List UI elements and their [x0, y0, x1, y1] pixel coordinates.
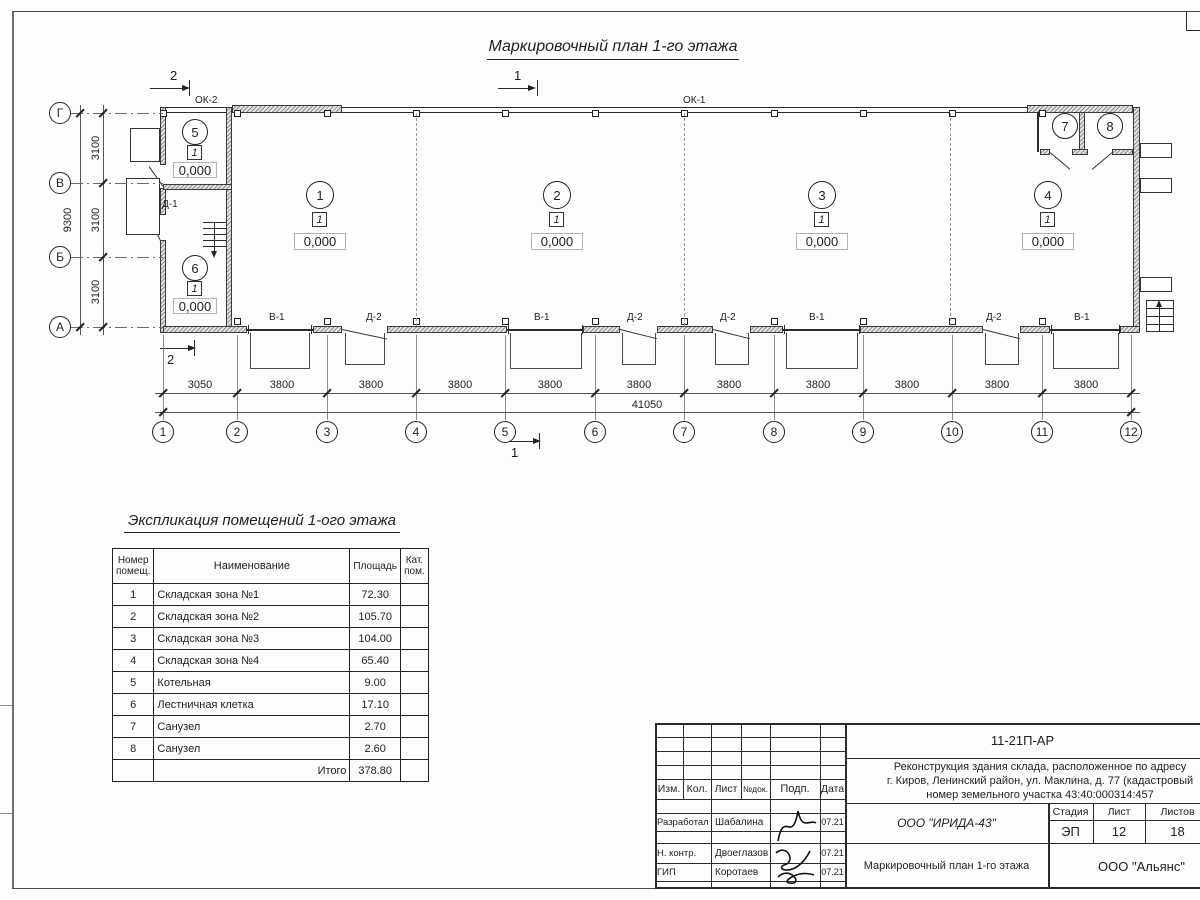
section-label: 1	[514, 68, 521, 83]
opening-label: В-1	[269, 312, 285, 323]
column-marker	[592, 110, 599, 117]
axis-bubble: В	[49, 172, 71, 194]
dimension-total: 9300	[62, 208, 74, 232]
wall-left-3	[160, 240, 166, 333]
room-number-bubble: 5	[182, 119, 208, 145]
grid-bubble: 1	[152, 421, 174, 443]
schedule-header: Номер помещ.	[113, 549, 154, 584]
gate-opening-line	[507, 329, 583, 331]
room-type-marker: 1	[1040, 212, 1055, 227]
sheet-value: 12	[1093, 820, 1145, 843]
elevation-label: 0,000	[531, 233, 583, 250]
room-number-bubble: 3	[808, 181, 836, 209]
window-mark-ok2: ОК-2	[195, 95, 218, 106]
gate-jamb	[859, 325, 860, 334]
section-arrow-line	[150, 88, 182, 89]
ramp	[715, 333, 749, 365]
dimension-value: 3800	[359, 379, 383, 391]
dimension-value: 3800	[985, 379, 1009, 391]
dimension-value: 3800	[895, 379, 919, 391]
window-band-ok2	[163, 107, 232, 113]
gate-jamb	[1051, 325, 1052, 334]
table-row: 5 Котельная 9.00	[113, 672, 429, 694]
room-type-marker: 1	[187, 145, 202, 160]
room-number-bubble: 1	[306, 181, 334, 209]
wall-block-right	[226, 107, 232, 333]
column-marker	[1039, 110, 1046, 117]
frame-left-mark-2	[0, 813, 12, 814]
stair-tread	[1146, 316, 1174, 317]
extension-line	[595, 335, 596, 420]
ramp	[985, 333, 1019, 365]
gate-jamb	[582, 325, 583, 334]
table-row: 4 Складская зона №4 65.40	[113, 650, 429, 672]
wall-bottom-4	[583, 326, 620, 333]
section-arrow-line	[498, 88, 530, 89]
frame-corner-box	[1186, 11, 1187, 30]
schedule-header: Наименование	[154, 549, 350, 584]
room-number-bubble: 4	[1034, 181, 1062, 209]
stair-tread	[1146, 324, 1174, 325]
ramp	[510, 333, 582, 369]
contractor-org: ООО "Альянс"	[1048, 843, 1200, 889]
column-marker	[324, 318, 331, 325]
dimension-value: 3800	[717, 379, 741, 391]
grid-bubble: 2	[226, 421, 248, 443]
tb-date: 07.21	[820, 843, 845, 863]
ramp	[786, 333, 858, 369]
drawing-sheet: { "plan": { "title": "Маркировочный план…	[0, 0, 1200, 900]
grid-bubble: 8	[763, 421, 785, 443]
extension-line	[1131, 335, 1132, 420]
extension-line	[327, 335, 328, 420]
dimension-line	[155, 393, 1140, 394]
room-number-bubble: 2	[543, 181, 571, 209]
grid-bubble: 5	[494, 421, 516, 443]
sheets-header: Листов	[1145, 803, 1200, 820]
column-marker	[1039, 318, 1046, 325]
room-type-marker: 1	[312, 212, 327, 227]
extension-line	[237, 335, 238, 420]
schedule-header: Кат. пом.	[400, 549, 428, 584]
schedule-total-value: 378.80	[350, 760, 401, 782]
pilaster	[1140, 143, 1172, 158]
window-mark-ok1: ОК-1	[683, 95, 706, 106]
tb-date: 07.21	[820, 813, 845, 831]
axis-bubble: А	[49, 316, 71, 338]
schedule-header: Площадь	[350, 549, 401, 584]
tb-line	[655, 799, 845, 800]
opening-label: Д-2	[627, 312, 643, 323]
section-arrow-line	[160, 348, 188, 349]
gate-opening-line	[783, 329, 860, 331]
opening-label: В-1	[534, 312, 550, 323]
axis-line	[71, 183, 163, 184]
opening-label: В-1	[809, 312, 825, 323]
tb-role: Н. контр.	[655, 843, 711, 863]
pilaster	[1140, 178, 1172, 193]
column-marker	[324, 110, 331, 117]
gate-jamb	[1119, 325, 1120, 334]
dimension-value: 3100	[90, 208, 102, 232]
project-description-line: Реконструкция здания склада, расположенн…	[845, 760, 1200, 774]
porch	[130, 128, 160, 162]
ramp	[1053, 333, 1119, 369]
stair-tread	[1146, 308, 1174, 309]
wall-bottom-6	[750, 326, 783, 333]
table-row: 7 Санузел 2.70	[113, 716, 429, 738]
dimension-value: 3800	[627, 379, 651, 391]
schedule-total-label: Итого	[154, 760, 350, 782]
room-type-marker: 1	[814, 212, 829, 227]
gate-jamb	[311, 325, 312, 334]
grid-bubble: 10	[941, 421, 963, 443]
frame-corner-box-line	[1186, 30, 1200, 31]
stair-direction-line	[214, 222, 215, 252]
tb-person: Шабалина	[713, 813, 769, 831]
grid-bubble: 6	[584, 421, 606, 443]
elevation-label: 0,000	[173, 162, 217, 178]
plan-title: Маркировочный план 1-го этажа	[487, 38, 739, 60]
wall-wc-bottom-1	[1040, 149, 1050, 155]
wall-building-right	[1133, 107, 1140, 333]
tb-header-podp: Подп.	[770, 779, 820, 799]
wall-bottom-8	[1020, 326, 1050, 333]
ramp	[622, 333, 656, 365]
elevation-label: 0,000	[294, 233, 346, 250]
dimension-line	[155, 412, 1140, 413]
axis-line	[71, 257, 163, 258]
dimension-value: 3800	[806, 379, 830, 391]
dimension-value: 3800	[538, 379, 562, 391]
wall-bottom-9	[1120, 326, 1140, 333]
section-trace	[194, 340, 195, 356]
gate-opening-line	[1050, 329, 1120, 331]
extension-line	[863, 335, 864, 420]
axis-line	[71, 113, 163, 114]
tb-header-kol: Кол.	[683, 779, 711, 799]
schedule-total-row: Итого 378.80	[113, 760, 429, 782]
gate-jamb	[508, 325, 509, 334]
frame-left	[12, 11, 14, 888]
column-marker	[234, 110, 241, 117]
extension-line	[163, 335, 164, 420]
extension-line	[1042, 335, 1043, 420]
room-number-bubble: 7	[1052, 113, 1078, 139]
extension-line	[952, 335, 953, 420]
wall-wc-bottom-2	[1072, 149, 1088, 155]
wall-bottom-7	[860, 326, 983, 333]
extension-line	[684, 335, 685, 420]
dimension-value: 3800	[448, 379, 472, 391]
tb-person: Коротаев	[713, 863, 769, 881]
table-row: 8 Санузел 2.60	[113, 738, 429, 760]
column-marker	[502, 110, 509, 117]
stair-arrow-down	[211, 251, 217, 258]
stage-header: Стадия	[1048, 803, 1093, 820]
room-schedule-table: Номер помещ. Наименование Площадь Кат. п…	[112, 548, 429, 782]
wall-wc-partition	[1079, 112, 1085, 152]
document-code: 11-21П-АР	[845, 723, 1200, 758]
tb-header-data: Дата	[820, 779, 845, 799]
column-marker	[234, 318, 241, 325]
axis-bubble: Г	[49, 102, 71, 124]
table-row: 3 Складская зона №3 104.00	[113, 628, 429, 650]
porch	[126, 178, 160, 235]
room-type-marker: 1	[549, 212, 564, 227]
tb-person: Двоеглазов	[713, 843, 769, 863]
gate-jamb	[784, 325, 785, 334]
section-arrowhead	[528, 85, 536, 91]
tb-role: Разработал	[655, 813, 711, 831]
design-org: ООО "ИРИДА-43"	[845, 803, 1048, 843]
wall-wc-left	[1037, 112, 1039, 152]
extension-line	[416, 335, 417, 420]
title-block: Изм. Кол. Лист №док. Подп. Дата Разработ…	[655, 723, 1200, 889]
wall-bottom-2	[313, 326, 342, 333]
dimension-line	[103, 105, 104, 335]
grid-bubble: 12	[1120, 421, 1142, 443]
wall-bottom-3	[387, 326, 507, 333]
column-marker	[502, 318, 509, 325]
ramp	[250, 333, 310, 369]
table-row: 2 Складская зона №2 105.70	[113, 606, 429, 628]
dimension-value: 3800	[1074, 379, 1098, 391]
ramp	[345, 333, 385, 365]
table-row: 6 Лестничная клетка 17.10	[113, 694, 429, 716]
room-number-bubble: 8	[1097, 113, 1123, 139]
dimension-value: 3100	[90, 136, 102, 160]
section-label: 1	[511, 445, 518, 460]
opening-label: Д-2	[720, 312, 736, 323]
section-trace	[189, 80, 190, 96]
project-description-line: номер земельного участка 43:40:000314:45…	[845, 788, 1200, 802]
grid-bubble: 7	[673, 421, 695, 443]
column-marker	[860, 318, 867, 325]
dimension-value: 3100	[90, 280, 102, 304]
stair-arrow-up	[1156, 300, 1162, 307]
axis-line	[71, 327, 163, 328]
door-leaf-wc8	[1092, 152, 1113, 170]
section-label: 2	[170, 68, 177, 83]
grid-bubble: 9	[852, 421, 874, 443]
schedule-title: Экспликация помещений 1-ого этажа	[124, 512, 400, 533]
opening-label: Д-2	[366, 312, 382, 323]
column-marker	[771, 318, 778, 325]
extension-line	[505, 335, 506, 420]
elevation-label: 0,000	[796, 233, 848, 250]
tb-line	[711, 723, 712, 889]
dimension-value: 3800	[270, 379, 294, 391]
section-trace	[539, 433, 540, 449]
section-trace	[537, 80, 538, 96]
elevation-label: 0,000	[1022, 233, 1074, 250]
gate-opening-line	[247, 329, 313, 331]
wall-bottom-5	[657, 326, 713, 333]
table-row: 1 Складская зона №1 72.30	[113, 584, 429, 606]
opening-label: Д-2	[986, 312, 1002, 323]
column-marker	[860, 110, 867, 117]
wall-bottom-1	[163, 326, 247, 333]
wall-room5-6-divider	[163, 184, 232, 190]
dimension-line	[80, 105, 81, 335]
extension-line	[774, 335, 775, 420]
drawing-name: Маркировочный план 1-го этажа	[845, 843, 1048, 889]
door-mark-d1: Д-1	[162, 199, 178, 210]
column-marker	[771, 110, 778, 117]
zone-separator	[684, 113, 685, 326]
grid-bubble: 3	[316, 421, 338, 443]
stage-value: ЭП	[1048, 820, 1093, 843]
frame-left-mark-1	[0, 705, 12, 706]
gate-jamb	[248, 325, 249, 334]
axis-bubble: Б	[49, 246, 71, 268]
grid-bubble: 4	[405, 421, 427, 443]
signature	[770, 839, 820, 887]
opening-label: В-1	[1074, 312, 1090, 323]
column-marker	[592, 318, 599, 325]
project-description-line: г. Киров, Ленинский район, ул. Маклина, …	[845, 774, 1200, 788]
wall-wc-bottom-3	[1112, 149, 1133, 155]
room-type-marker: 1	[187, 281, 202, 296]
tb-line	[845, 758, 1200, 759]
frame-top	[12, 11, 1200, 12]
pilaster	[1140, 277, 1172, 292]
grid-bubble: 11	[1031, 421, 1053, 443]
schedule-header-row: Номер помещ. Наименование Площадь Кат. п…	[113, 549, 429, 584]
tb-header-izm: Изм.	[655, 779, 683, 799]
tb-header-ndok: №док.	[741, 779, 770, 799]
zone-separator	[950, 113, 951, 326]
zone-separator	[416, 113, 417, 326]
dimension-total: 41050	[632, 399, 663, 411]
section-label: 2	[167, 352, 174, 367]
tb-date: 07.21	[820, 863, 845, 881]
sheet-header: Лист	[1093, 803, 1145, 820]
room-number-bubble: 6	[182, 255, 208, 281]
tb-role: ГИП	[655, 863, 711, 881]
elevation-label: 0,000	[173, 298, 217, 314]
tb-header-list: Лист	[711, 779, 741, 799]
door-leaf-wc7	[1050, 152, 1071, 170]
sheets-value: 18	[1145, 820, 1200, 843]
dimension-value: 3050	[188, 379, 212, 391]
